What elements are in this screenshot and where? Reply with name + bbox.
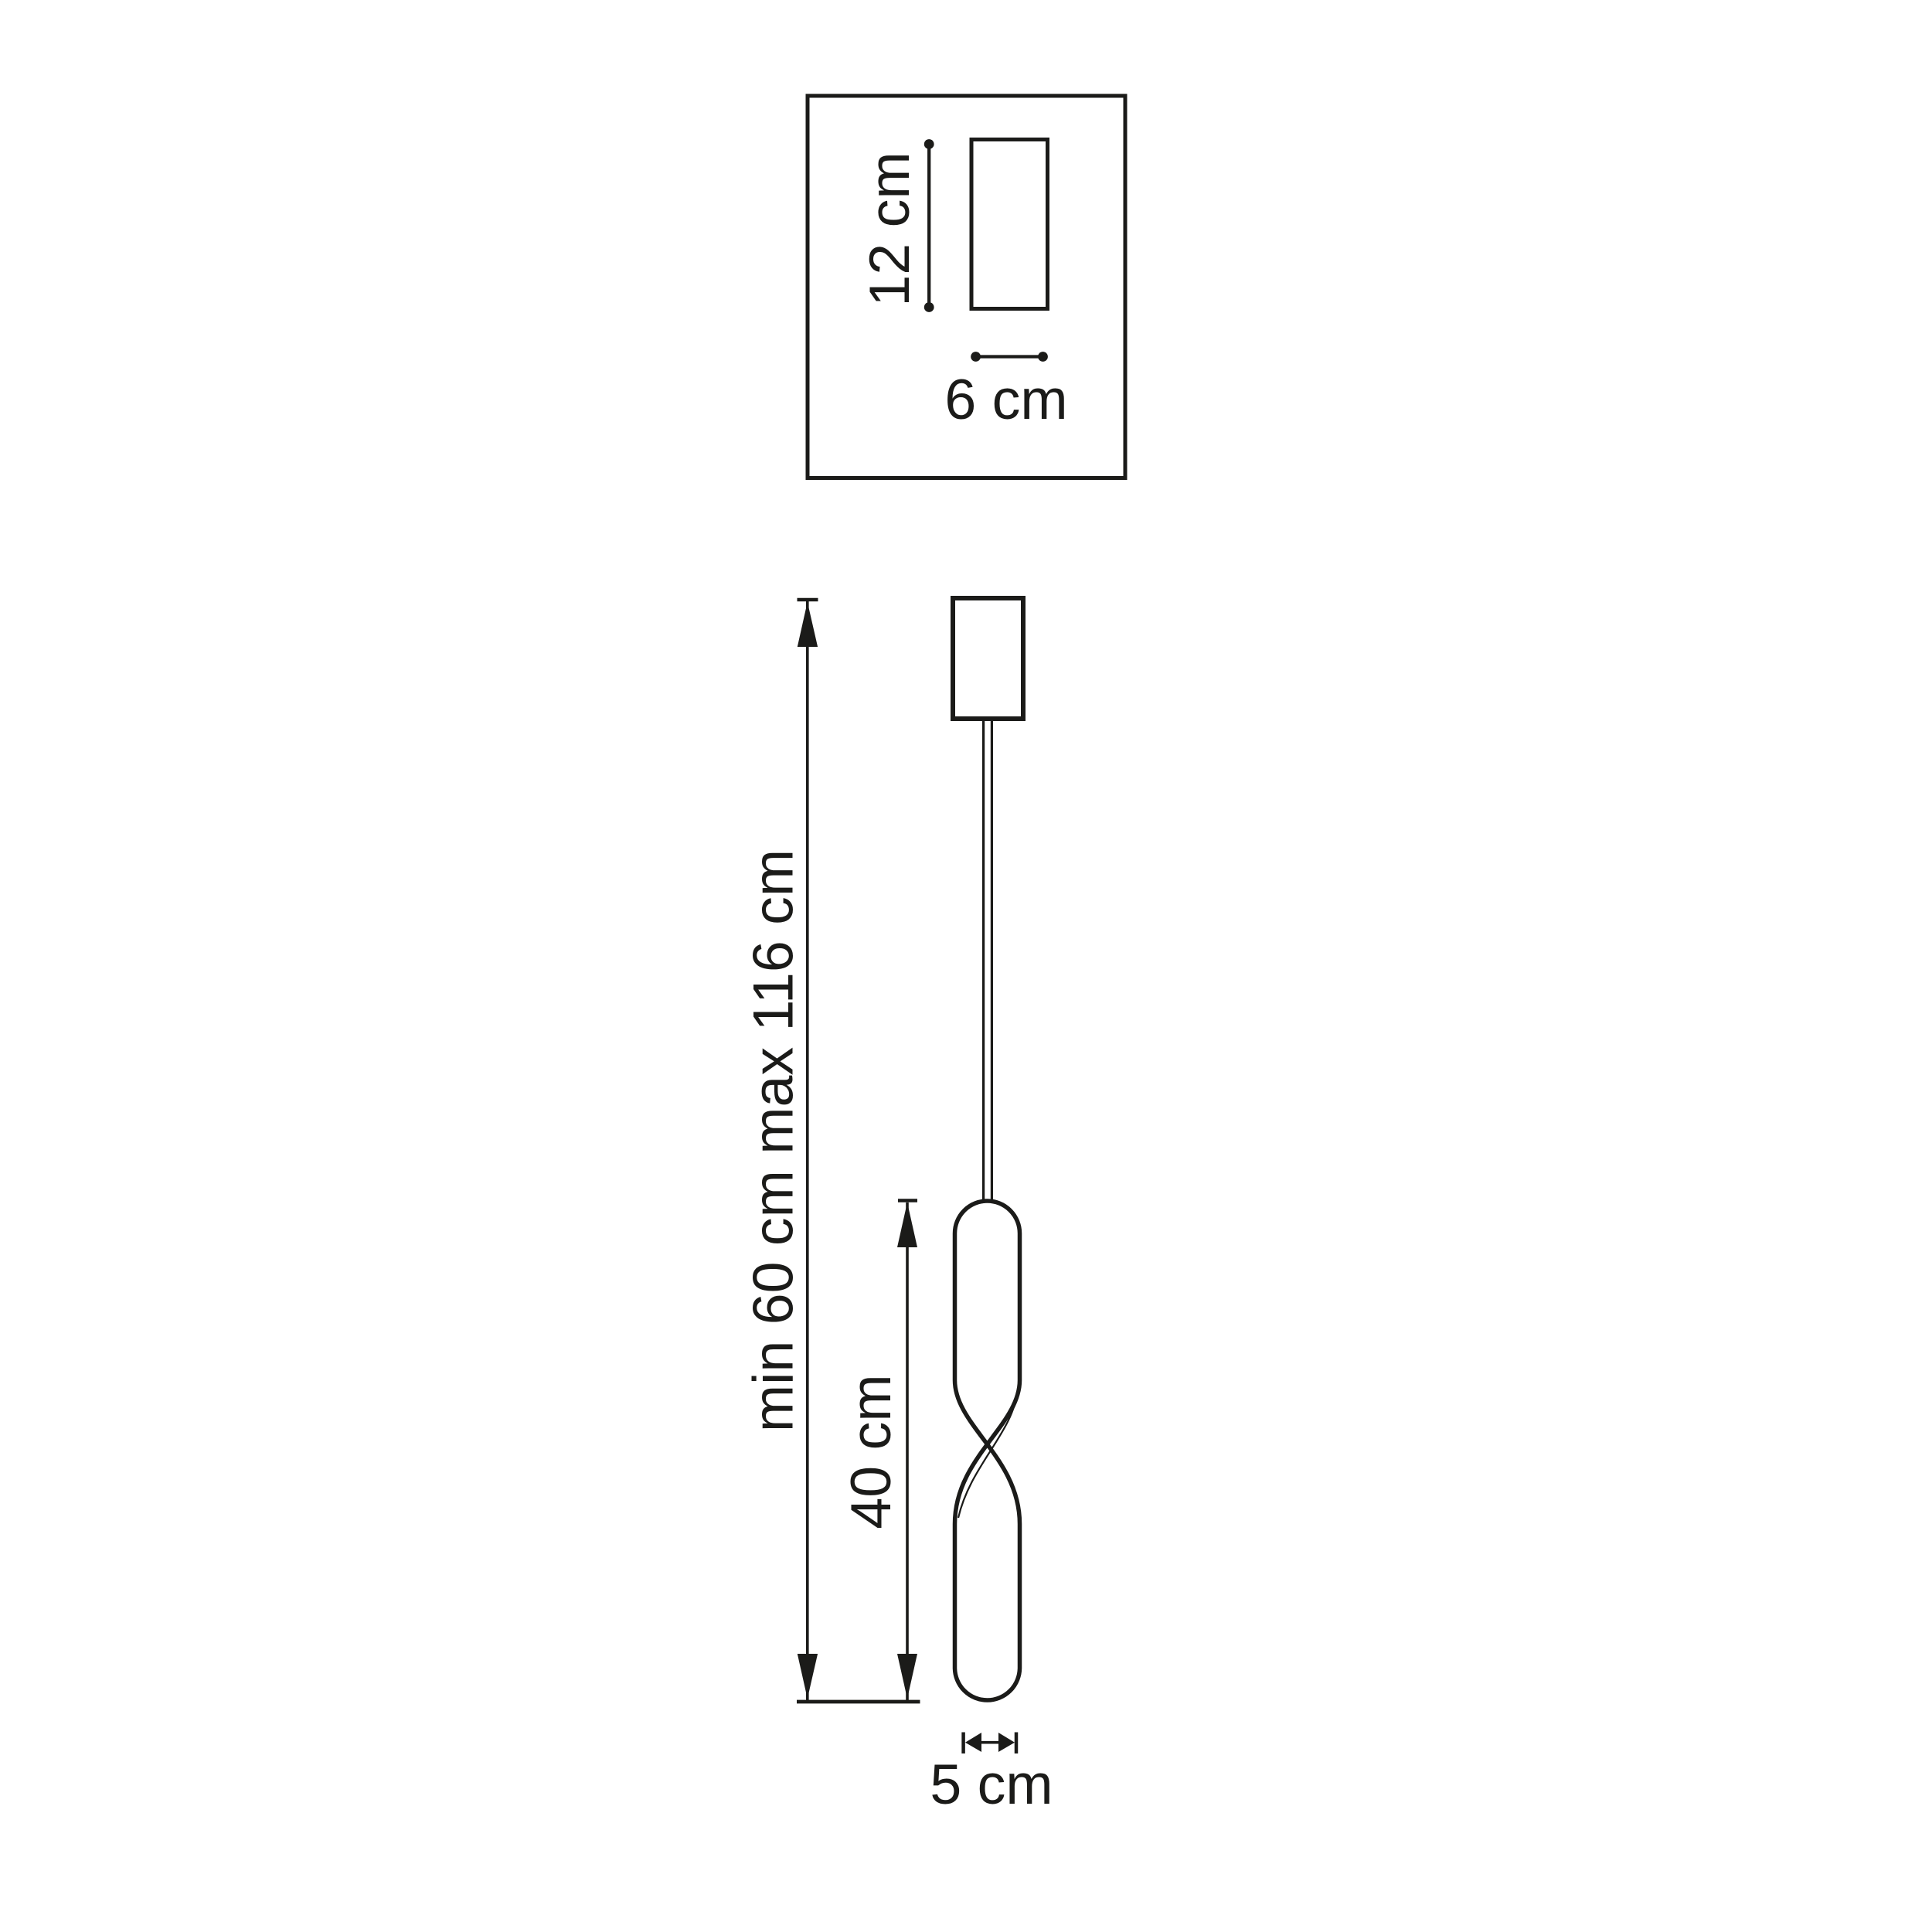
- svg-text:5 cm: 5 cm: [930, 1752, 1053, 1816]
- svg-text:min 60 cm max 116 cm: min 60 cm max 116 cm: [741, 849, 805, 1432]
- svg-text:40 cm: 40 cm: [838, 1374, 903, 1529]
- svg-text:6 cm: 6 cm: [944, 367, 1067, 431]
- svg-text:12 cm: 12 cm: [857, 151, 921, 306]
